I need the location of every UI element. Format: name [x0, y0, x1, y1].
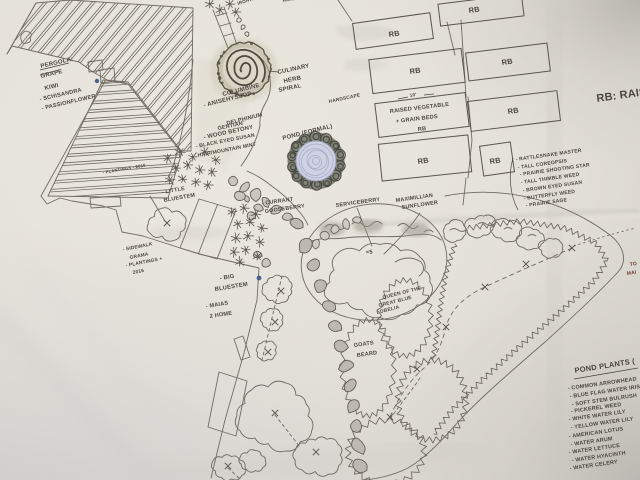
- svg-text:×5: ×5: [366, 249, 373, 256]
- svg-text:RB: RB: [409, 65, 422, 76]
- svg-text:RB: RB: [417, 155, 430, 166]
- svg-text:TO: TO: [629, 261, 637, 268]
- svg-text:RB: RB: [489, 155, 502, 166]
- svg-text:RB: RB: [388, 28, 401, 39]
- svg-text:RB: RB: [468, 4, 481, 15]
- svg-text:RB: RB: [501, 56, 514, 67]
- svg-text:RB: RB: [507, 105, 520, 116]
- svg-text:RB: RB: [418, 126, 427, 133]
